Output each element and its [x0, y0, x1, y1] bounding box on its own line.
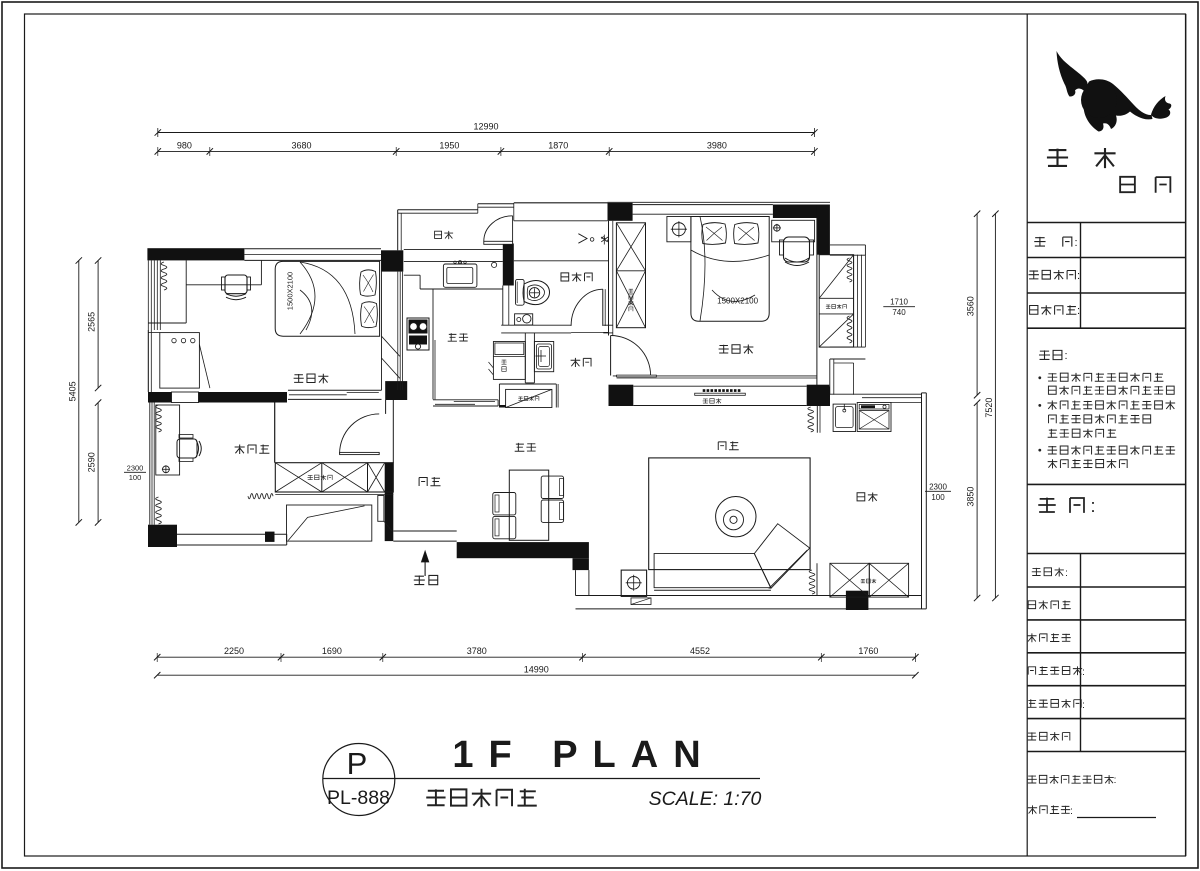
- svg-text::: :: [1082, 667, 1085, 678]
- svg-text:14990: 14990: [524, 664, 549, 674]
- svg-text:3780: 3780: [467, 646, 487, 656]
- svg-text:PL-888: PL-888: [327, 787, 390, 809]
- svg-text:2300: 2300: [127, 464, 144, 473]
- svg-text:2250: 2250: [224, 646, 244, 656]
- svg-text:2300: 2300: [929, 482, 947, 491]
- svg-text::: :: [1077, 305, 1080, 317]
- svg-text::: :: [1082, 700, 1085, 711]
- svg-text:2565: 2565: [87, 312, 97, 332]
- svg-text:100: 100: [931, 493, 945, 502]
- svg-text:P: P: [347, 746, 368, 781]
- svg-text::: :: [1077, 270, 1080, 282]
- svg-text:12990: 12990: [473, 122, 498, 132]
- svg-text:1710: 1710: [890, 298, 908, 307]
- svg-text:3560: 3560: [966, 296, 976, 316]
- svg-text:2590: 2590: [87, 452, 97, 472]
- svg-text:3980: 3980: [707, 140, 727, 150]
- svg-text::: :: [1074, 237, 1077, 249]
- svg-text:3680: 3680: [291, 140, 311, 150]
- svg-text::: :: [1064, 350, 1067, 362]
- svg-text:1500X2100: 1500X2100: [717, 296, 758, 305]
- svg-text::: :: [1070, 806, 1073, 817]
- svg-text::: :: [1114, 775, 1117, 786]
- svg-text:1870: 1870: [548, 140, 568, 150]
- svg-text:1760: 1760: [858, 646, 878, 656]
- svg-text::: :: [1065, 568, 1068, 579]
- svg-text::: :: [1090, 496, 1095, 516]
- svg-text:SCALE: 1:70: SCALE: 1:70: [649, 788, 762, 810]
- svg-text:5405: 5405: [68, 381, 78, 401]
- svg-text:7520: 7520: [984, 398, 994, 418]
- svg-text:1690: 1690: [322, 646, 342, 656]
- svg-text:1F PLAN: 1F PLAN: [452, 734, 715, 776]
- svg-text:740: 740: [892, 308, 906, 317]
- svg-text:3850: 3850: [966, 487, 976, 507]
- svg-text:1500X2100: 1500X2100: [285, 272, 294, 310]
- svg-text:4552: 4552: [690, 646, 710, 656]
- svg-text:100: 100: [129, 473, 142, 482]
- svg-text:1950: 1950: [439, 140, 459, 150]
- svg-text:980: 980: [177, 140, 192, 150]
